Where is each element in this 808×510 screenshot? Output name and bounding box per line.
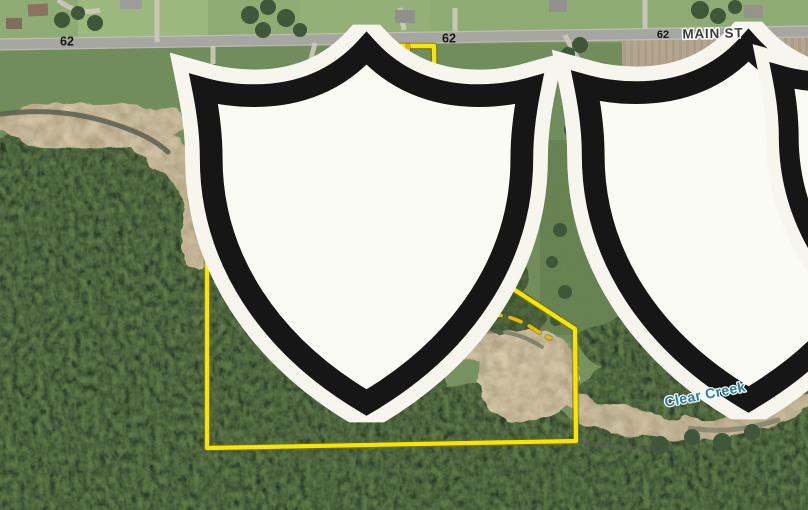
street-name-label: MAIN ST [682, 25, 743, 41]
map-viewport[interactable]: 62 62 62 MAIN ST Clear Creek [0, 0, 808, 510]
route-number-label: 62 [60, 35, 74, 49]
route-number-label: 62 [657, 29, 669, 41]
route-number-label: 62 [442, 32, 456, 46]
